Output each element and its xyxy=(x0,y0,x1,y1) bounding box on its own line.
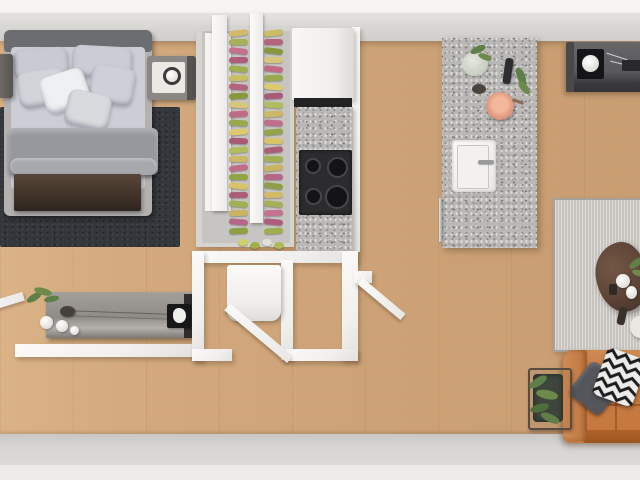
clothes-item xyxy=(264,101,283,108)
clothes-item xyxy=(229,110,248,117)
clothes-item xyxy=(264,200,284,208)
clothes-item xyxy=(229,138,248,145)
wardrobe-rail xyxy=(250,13,263,223)
dresser-art-frame xyxy=(167,304,191,328)
clothes-item xyxy=(264,164,284,172)
nightstand-right xyxy=(147,56,196,100)
speaker-cone xyxy=(582,55,599,72)
clothes-item xyxy=(229,75,248,82)
refrigerator xyxy=(292,28,354,100)
burner xyxy=(325,185,349,209)
dresser-vase xyxy=(56,320,68,332)
clothes-rack-left xyxy=(229,30,248,234)
dresser-vase xyxy=(70,326,79,335)
shoe xyxy=(274,242,284,249)
clothes-item xyxy=(264,75,283,82)
clothes-item xyxy=(264,47,284,55)
clothes-item xyxy=(229,120,248,127)
burner xyxy=(305,158,321,174)
table-candle xyxy=(609,284,617,295)
clothes-item xyxy=(229,101,248,108)
clothes-item xyxy=(264,174,283,180)
bottom-exterior-band xyxy=(0,434,640,465)
nightstand-side-panel xyxy=(187,56,196,100)
wardrobe-rail xyxy=(212,15,227,211)
top-trim-strip xyxy=(0,0,640,13)
clothes-item xyxy=(264,120,283,127)
bathroom-south-wall-left xyxy=(192,349,232,361)
nightstand-left xyxy=(0,54,13,98)
clothes-item xyxy=(264,65,284,73)
clothes-item xyxy=(229,57,248,63)
apartment-floorplan-render xyxy=(0,0,640,480)
clothes-item xyxy=(264,228,283,235)
clothes-item xyxy=(229,47,249,55)
clothes-item xyxy=(229,164,249,172)
cooktop xyxy=(299,150,352,215)
burner xyxy=(305,188,322,205)
clothes-item xyxy=(229,228,248,235)
clothes-item xyxy=(264,218,283,226)
bathroom-west-wall xyxy=(192,251,204,361)
bathroom-divider-wall xyxy=(281,260,293,360)
island-sink xyxy=(452,140,496,192)
dishwasher-handle xyxy=(439,198,442,242)
clothes-item xyxy=(229,210,248,217)
clothes-item xyxy=(229,192,248,198)
speaker-box xyxy=(577,49,604,79)
clothes-item xyxy=(264,29,284,37)
small-bowl xyxy=(472,84,486,94)
bed-duvet-fold xyxy=(10,158,157,175)
sink-basin xyxy=(457,145,489,189)
art-motif xyxy=(173,308,186,323)
clothes-item xyxy=(229,174,248,180)
clothes-item xyxy=(264,83,283,91)
clothes-item xyxy=(229,65,249,73)
clothes-item xyxy=(264,210,283,217)
bottom-trim-strip xyxy=(0,465,640,480)
bathroom-south-wall-right xyxy=(286,349,358,361)
clothes-item xyxy=(264,93,283,100)
console-slot xyxy=(622,60,640,71)
sink-faucet xyxy=(478,160,494,164)
bed-foot-bench xyxy=(14,174,141,211)
clothes-item xyxy=(229,128,248,136)
clothes-item xyxy=(264,128,283,136)
clothes-item xyxy=(229,218,248,226)
clothes-item xyxy=(264,110,283,117)
clothes-item xyxy=(229,182,249,190)
clothes-item xyxy=(229,39,248,45)
lamp-globe xyxy=(166,70,178,82)
bedroom-south-wall xyxy=(15,344,196,357)
table-jug xyxy=(626,286,637,299)
media-console xyxy=(566,42,640,92)
clothes-item xyxy=(264,57,283,63)
clothes-item xyxy=(264,156,283,162)
clothes-item xyxy=(229,83,248,91)
clothes-item xyxy=(229,93,248,100)
bathroom-north-wall xyxy=(192,251,358,263)
bathroom-east-wall xyxy=(342,251,358,361)
clothes-item xyxy=(264,146,284,154)
clothes-item xyxy=(229,29,249,37)
console-end-cap xyxy=(566,42,574,92)
shoe xyxy=(238,239,248,246)
burner xyxy=(327,157,348,178)
clothes-item xyxy=(229,156,248,162)
clothes-rack-right xyxy=(264,30,283,234)
clothes-item xyxy=(264,182,284,190)
shoe xyxy=(262,239,272,246)
fridge-counter-gap xyxy=(294,98,352,107)
dresser-bowl xyxy=(60,306,75,317)
sofa-front-edge xyxy=(583,430,640,443)
copper-pot xyxy=(486,92,514,120)
clothes-item xyxy=(264,39,283,45)
dresser-vase xyxy=(40,316,53,329)
shoe xyxy=(250,242,260,249)
clothes-item xyxy=(264,192,283,198)
clothes-item xyxy=(229,200,249,208)
clothes-item xyxy=(229,146,249,154)
clothes-item xyxy=(264,138,283,145)
